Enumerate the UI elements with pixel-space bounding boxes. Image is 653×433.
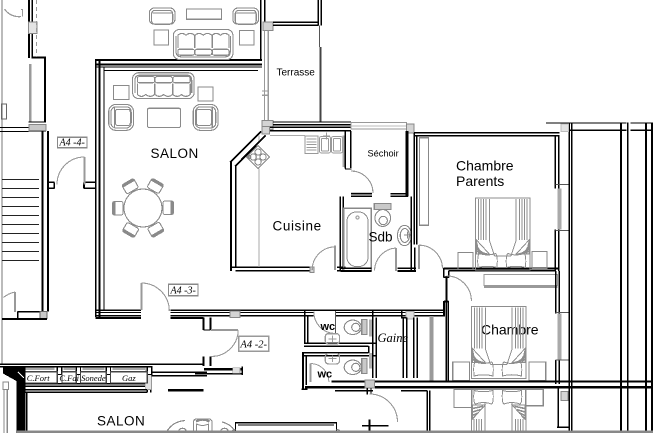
svg-text:A4 -2-: A4 -2-: [239, 340, 267, 351]
svg-text:Sonede: Sonede: [81, 373, 106, 383]
svg-text:Séchoir: Séchoir: [368, 149, 399, 159]
svg-text:wc: wc: [320, 321, 336, 333]
svg-text:SALON: SALON: [151, 146, 199, 161]
svg-text:C.Fai: C.Fai: [59, 373, 79, 383]
svg-text:A4 -4-: A4 -4-: [59, 138, 85, 149]
svg-text:A4 -3-: A4 -3-: [170, 286, 196, 297]
svg-text:C.Fort: C.Fort: [27, 373, 51, 383]
svg-text:Sdb: Sdb: [369, 230, 393, 245]
svg-text:SALON: SALON: [97, 414, 145, 429]
svg-text:Parents: Parents: [456, 173, 504, 189]
svg-text:Chambre: Chambre: [456, 158, 514, 174]
svg-text:Terrasse: Terrasse: [277, 68, 316, 79]
svg-text:Gaz: Gaz: [122, 373, 136, 383]
svg-text:wc: wc: [317, 369, 333, 381]
svg-text:Chambre: Chambre: [481, 322, 539, 338]
svg-text:Gaine: Gaine: [378, 331, 409, 345]
svg-text:Cuisine: Cuisine: [273, 219, 322, 234]
